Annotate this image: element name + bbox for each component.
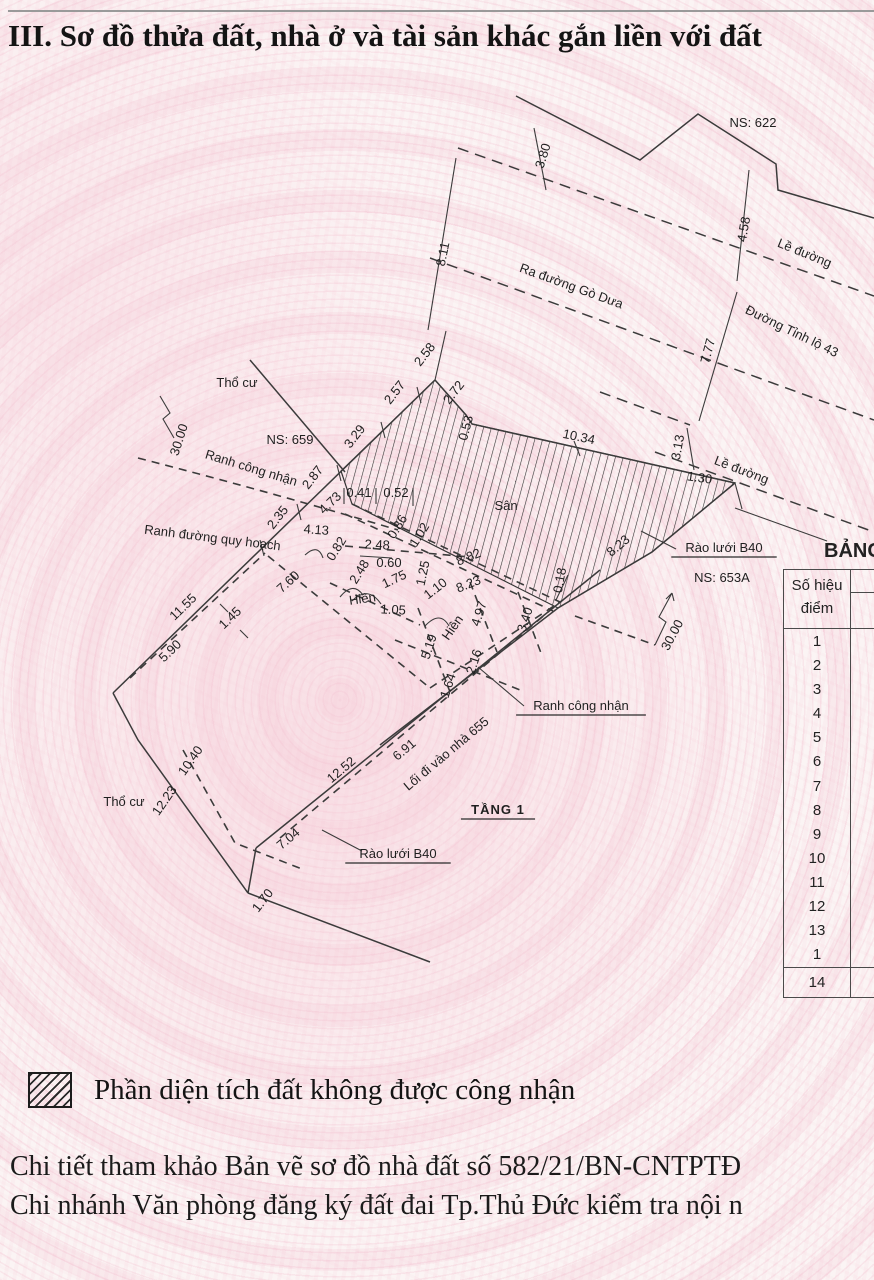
table-row: 4 xyxy=(784,702,850,726)
tick-130 xyxy=(735,483,742,509)
dim-label: 2.35 xyxy=(264,503,291,532)
table-row: 1 xyxy=(784,630,850,654)
dim-label: 12.23 xyxy=(149,783,180,818)
dim-label: 0.82 xyxy=(323,534,349,563)
table-row: 8 xyxy=(784,799,850,823)
label-ns-659: NS: 659 xyxy=(267,432,314,447)
footer-line-1: Chi tiết tham khảo Bản vẽ sơ đồ nhà đất … xyxy=(10,1148,874,1187)
dim-label: 10.34 xyxy=(561,426,596,447)
leader-ranh-cong-nhan xyxy=(478,667,524,706)
hien-line-2 xyxy=(395,640,520,690)
dim-label: 1.70 xyxy=(249,886,276,915)
dim-label: 0.41 xyxy=(346,485,371,500)
dim-label: 8.11 xyxy=(433,241,453,268)
tho-cu-spur xyxy=(250,360,345,472)
table-row: 10 xyxy=(784,847,850,871)
label-ns-622: NS: 622 xyxy=(730,115,777,130)
dim-label: 1.45 xyxy=(216,604,245,632)
dim-label: 1.75 xyxy=(379,567,408,591)
ranh-east-line xyxy=(575,616,655,645)
label-ns-653a: NS: 653A xyxy=(694,570,750,585)
label-ranh-duong-quy-hoach: Ranh đường quy hoạch xyxy=(144,522,282,554)
table-row: 12 xyxy=(784,895,850,919)
dim-label: 8.23 xyxy=(454,572,483,595)
footer-line-2: Chi nhánh Văn phòng đăng ký đất đai Tp.T… xyxy=(10,1187,874,1226)
table-row: 9 xyxy=(784,823,850,847)
parcel-boundary-west xyxy=(113,693,248,893)
table-row: 1 xyxy=(784,943,850,967)
label-hien-1: Hiên xyxy=(348,589,377,608)
leader-rao-luoi-bottom xyxy=(322,830,362,851)
label-ranh-cong-nhan-lower: Ranh công nhận xyxy=(533,698,628,713)
certificate-page: { "title": "III. Sơ đồ thửa đất, nhà ở v… xyxy=(0,0,874,1280)
boundary-ns-622 xyxy=(516,96,874,218)
fence-bottom-spur xyxy=(248,893,430,962)
dim-label: 5.90 xyxy=(156,637,185,665)
table-row: 13 xyxy=(784,919,850,943)
label-rao-luoi-b40-right: Rào lưới B40 xyxy=(685,540,762,555)
table-row: 3 xyxy=(784,678,850,702)
dim-label: 2.16 xyxy=(463,647,485,676)
hatch-legend-swatch xyxy=(28,1072,72,1108)
table-row: 7 xyxy=(784,775,850,799)
dim-label: 0.60 xyxy=(376,555,401,570)
tick-313 xyxy=(687,428,694,470)
dim-label: 2.58 xyxy=(411,340,438,369)
dim-label: 3.13 xyxy=(668,433,687,461)
dim-label: 4.13 xyxy=(303,521,329,538)
footer-note: Chi tiết tham khảo Bản vẽ sơ đồ nhà đất … xyxy=(10,1148,874,1225)
table-bottom-divider xyxy=(784,967,874,968)
table-row: 11 xyxy=(784,871,850,895)
offset-590-line xyxy=(130,553,265,678)
road-edge-3 xyxy=(600,392,690,425)
dim-label: 7.60 xyxy=(274,568,303,596)
dim-label: 2.57 xyxy=(381,378,408,407)
table-row: 14 xyxy=(784,969,850,997)
label-ra-duong-go-dua: Ra đường Gò Dưa xyxy=(518,260,626,312)
dim-label: 7.77 xyxy=(697,337,718,365)
table-header2-split xyxy=(850,592,874,593)
dim-30-right: 30.00 xyxy=(658,617,687,653)
dim-label: 2.48 xyxy=(364,536,390,552)
dim-label: 2.87 xyxy=(299,463,326,492)
table-row: 5 xyxy=(784,726,850,750)
dim-label: 7.04 xyxy=(274,825,303,853)
dim-label: 3.29 xyxy=(341,422,368,451)
dim-label: 3.80 xyxy=(532,141,554,170)
label-san: Sân xyxy=(494,498,517,513)
dim-label: 1.64 xyxy=(437,671,459,700)
label-hien-2: Hiên xyxy=(438,612,466,643)
dim-label: 10.40 xyxy=(175,743,206,778)
table-rows: 123456789101112131 xyxy=(784,630,850,967)
tick-258 xyxy=(435,331,446,380)
kerb-line xyxy=(735,508,827,541)
table-header-point-number: Số hiệu điểm xyxy=(784,570,850,633)
dim-label: 0.52 xyxy=(383,485,408,500)
dim-label: 4.58 xyxy=(734,215,753,243)
table-row: 6 xyxy=(784,750,850,774)
dim-label: 1.05 xyxy=(380,601,406,617)
dim-30-left-mark xyxy=(160,396,174,438)
table-row: 2 xyxy=(784,654,850,678)
dim-label: 6.91 xyxy=(390,736,419,764)
label-duong-tinh-lo-43: Đường Tỉnh lộ 43 xyxy=(743,302,841,360)
label-rao-luoi-b40-bottom: Rào lưới B40 xyxy=(359,846,436,861)
table-title: BẢNG xyxy=(824,540,874,563)
label-tang-1: TẦNG 1 xyxy=(471,802,525,817)
table-header-border xyxy=(784,628,874,629)
legend-text: Phần diện tích đất không được công nhận xyxy=(94,1074,575,1107)
dim-label: 2.48 xyxy=(346,557,372,586)
label-le-duong-top: Lề đường xyxy=(775,235,833,270)
dim-30-left: 30.00 xyxy=(167,422,191,458)
label-tho-cu-top: Thổ cư xyxy=(216,375,258,390)
label-ranh-cong-nhan-upper: Ranh công nhận xyxy=(203,447,299,489)
parcel-jog-170 xyxy=(248,848,256,893)
dim-label: 3.40 xyxy=(514,605,536,634)
label-tho-cu-bottom: Thổ cư xyxy=(103,794,145,809)
table-column-divider xyxy=(850,570,851,997)
legend: Phần diện tích đất không được công nhận xyxy=(28,1072,575,1108)
point-table: Số hiệu điểm 123456789101112131 14 xyxy=(783,569,874,998)
